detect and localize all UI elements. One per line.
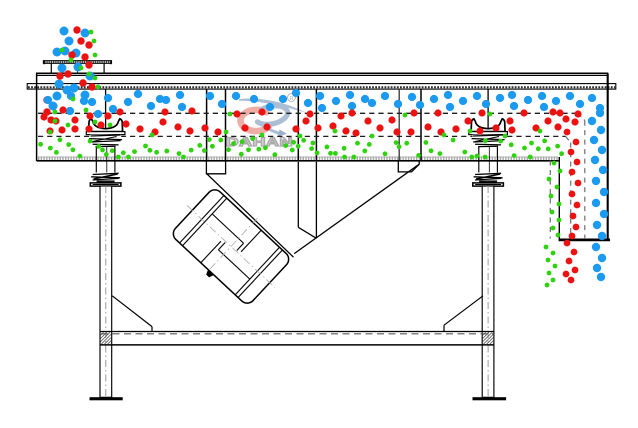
svg-text:R: R (290, 96, 294, 102)
